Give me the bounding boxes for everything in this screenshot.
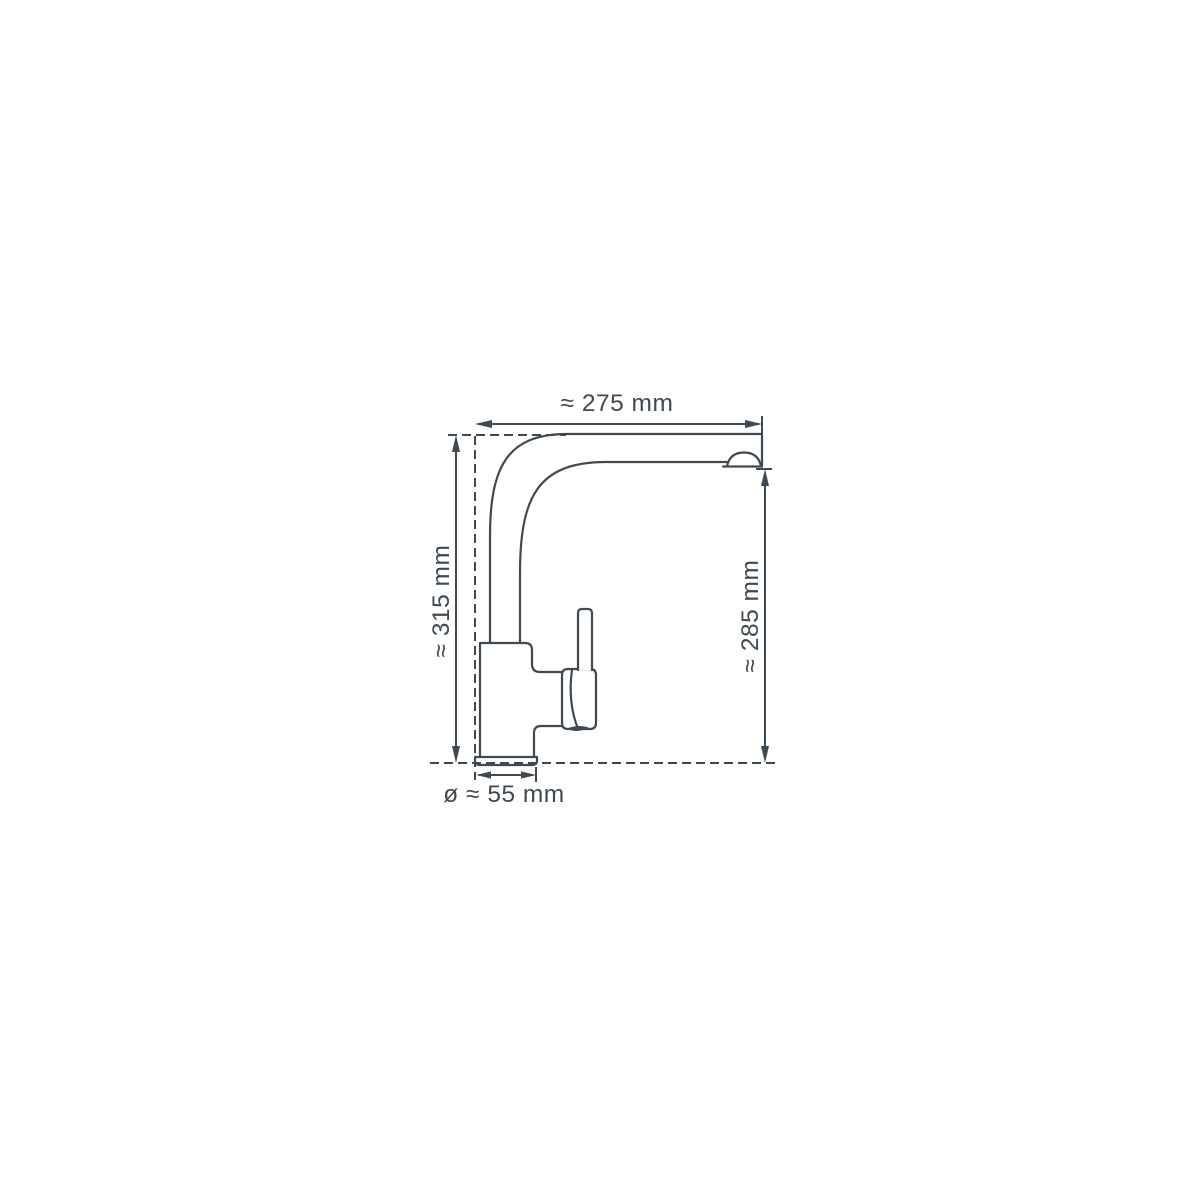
dimension-right-height: ≈ 285 mm <box>737 469 772 763</box>
faucet-body-upper <box>480 643 562 757</box>
aerator-outlet-dome <box>727 453 761 467</box>
dimension-left-height: ≈ 315 mm <box>428 435 460 763</box>
arrowhead-bottom-right <box>521 771 536 778</box>
faucet-dimension-diagram: ≈ 275 mm ≈ 315 mm ≈ 285 mm <box>0 0 1200 1200</box>
dim-label-base-diameter: ø ≈ 55 mm <box>443 781 564 808</box>
spout-outer-profile <box>490 434 762 643</box>
diagram-svg: ≈ 275 mm ≈ 315 mm ≈ 285 mm <box>0 0 1200 1200</box>
arrowhead-right-top <box>761 469 769 486</box>
dim-label-left-height: ≈ 315 mm <box>428 545 455 658</box>
handle-lever <box>578 609 592 670</box>
arrowhead-right-bottom <box>761 746 769 763</box>
faucet-body-lower <box>534 726 562 757</box>
dim-label-top-width: ≈ 275 mm <box>561 390 674 417</box>
extension-lines <box>430 435 778 780</box>
handle-cap <box>562 669 596 729</box>
arrowhead-bottom-left <box>476 771 491 778</box>
arrowhead-top-right <box>745 420 762 428</box>
faucet-drawing <box>475 434 762 765</box>
arrowhead-left-top <box>452 435 460 452</box>
arrowhead-top-left <box>475 420 492 428</box>
dim-label-right-height: ≈ 285 mm <box>737 560 764 673</box>
arrowhead-left-bottom <box>452 746 460 763</box>
spout-inner-profile <box>520 462 727 643</box>
dimension-base-diameter: ø ≈ 55 mm <box>443 767 564 808</box>
dimension-top-width: ≈ 275 mm <box>475 390 762 433</box>
